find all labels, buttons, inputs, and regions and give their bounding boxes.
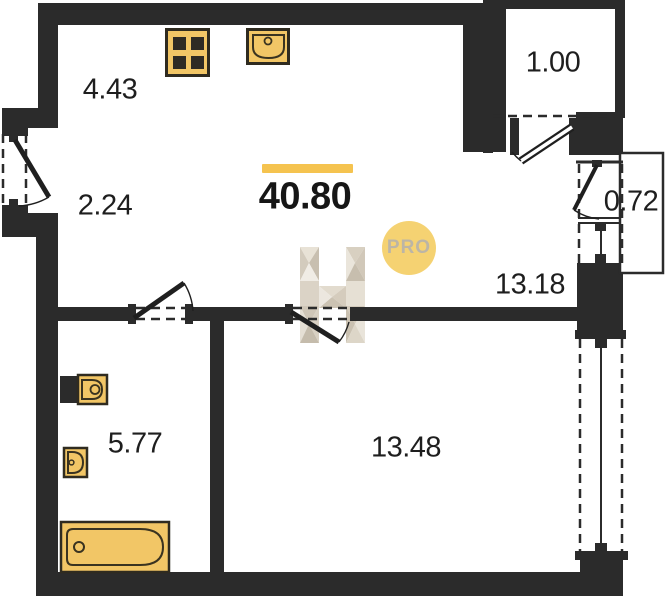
wall-top — [38, 3, 486, 25]
post-balcony-door-right — [569, 118, 578, 155]
wall-balcony-right — [615, 0, 625, 118]
stove-icon — [167, 30, 209, 76]
wall-divider — [210, 321, 224, 572]
entry-door-leaf — [15, 140, 49, 197]
wall-right-mid — [577, 263, 623, 332]
sill-entry-top — [2, 128, 28, 136]
area-label-balcony: 1.00 — [526, 47, 580, 80]
wall-left-jog — [2, 108, 58, 128]
floor-plan: 40.80 4.43 2.24 1.00 0.72 13.18 5.77 13.… — [0, 0, 669, 600]
area-label-bedroom: 13.48 — [371, 432, 441, 465]
wall-hall-1 — [58, 307, 128, 321]
wall-balcony-left — [483, 0, 493, 153]
post-bath-door-left — [128, 304, 136, 324]
pro-badge-label: PRO — [387, 237, 431, 259]
area-label-wardrobe: 0.72 — [604, 186, 658, 219]
area-label-kitchen-zone: 4.43 — [83, 74, 137, 107]
bath-sink-icon — [64, 448, 87, 477]
wall-right-upper — [576, 112, 623, 155]
post-window-bottom — [595, 543, 607, 552]
kitchen-sink-icon — [248, 30, 289, 64]
total-area-label: 40.80 — [259, 176, 352, 219]
entry-door-arc — [19, 197, 49, 206]
wall-balcony-top — [483, 0, 625, 9]
wall-left — [36, 213, 58, 596]
toilet-icon — [60, 375, 107, 404]
wall-bottom — [36, 572, 623, 596]
post-window-top — [595, 339, 607, 348]
post-balcony-door-left — [510, 118, 519, 155]
post-bath-door-right — [185, 304, 193, 324]
area-label-bathroom: 5.77 — [108, 428, 162, 461]
bath-door-leaf — [134, 283, 184, 318]
area-label-kitchen-living: 13.18 — [495, 269, 565, 302]
pro-badge: PRO — [382, 221, 436, 275]
bathtub-icon — [61, 522, 169, 572]
area-label-hallway-zone: 2.24 — [78, 190, 132, 223]
sill-window-bottom — [575, 551, 628, 560]
accent-bar — [262, 164, 353, 173]
wall-hall-2 — [193, 307, 285, 321]
wall-hall-3 — [350, 307, 580, 321]
balcony-door-leaf — [521, 127, 572, 161]
hinge-entry-bottom — [9, 199, 18, 205]
h-letter-watermark — [300, 247, 365, 343]
sill-window-top — [575, 330, 626, 339]
wardrobe-door-leaf — [574, 165, 597, 210]
